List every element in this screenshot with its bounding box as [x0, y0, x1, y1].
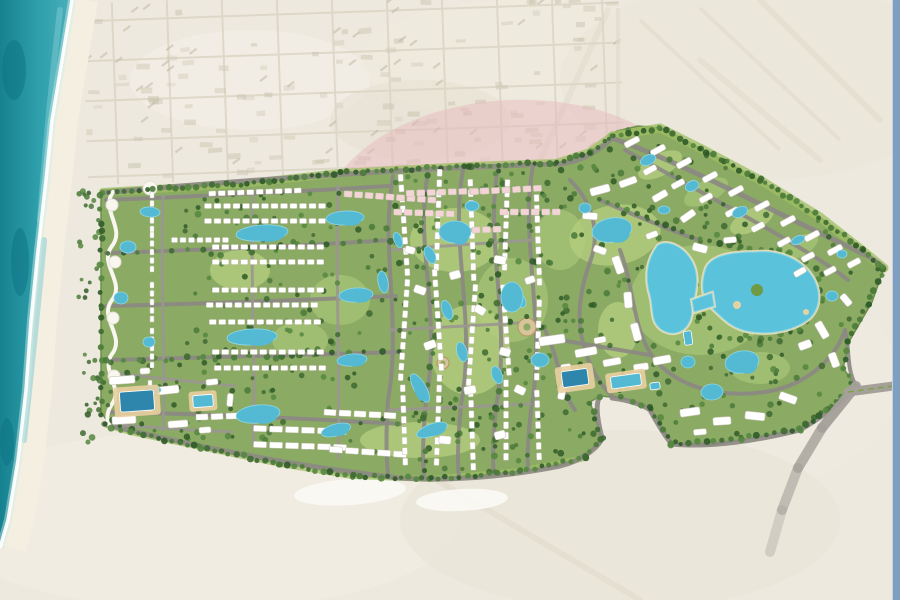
aerial-masterplan-view: [0, 0, 900, 600]
masterplan-map: [0, 0, 900, 600]
right-edge-bar: [892, 0, 900, 600]
